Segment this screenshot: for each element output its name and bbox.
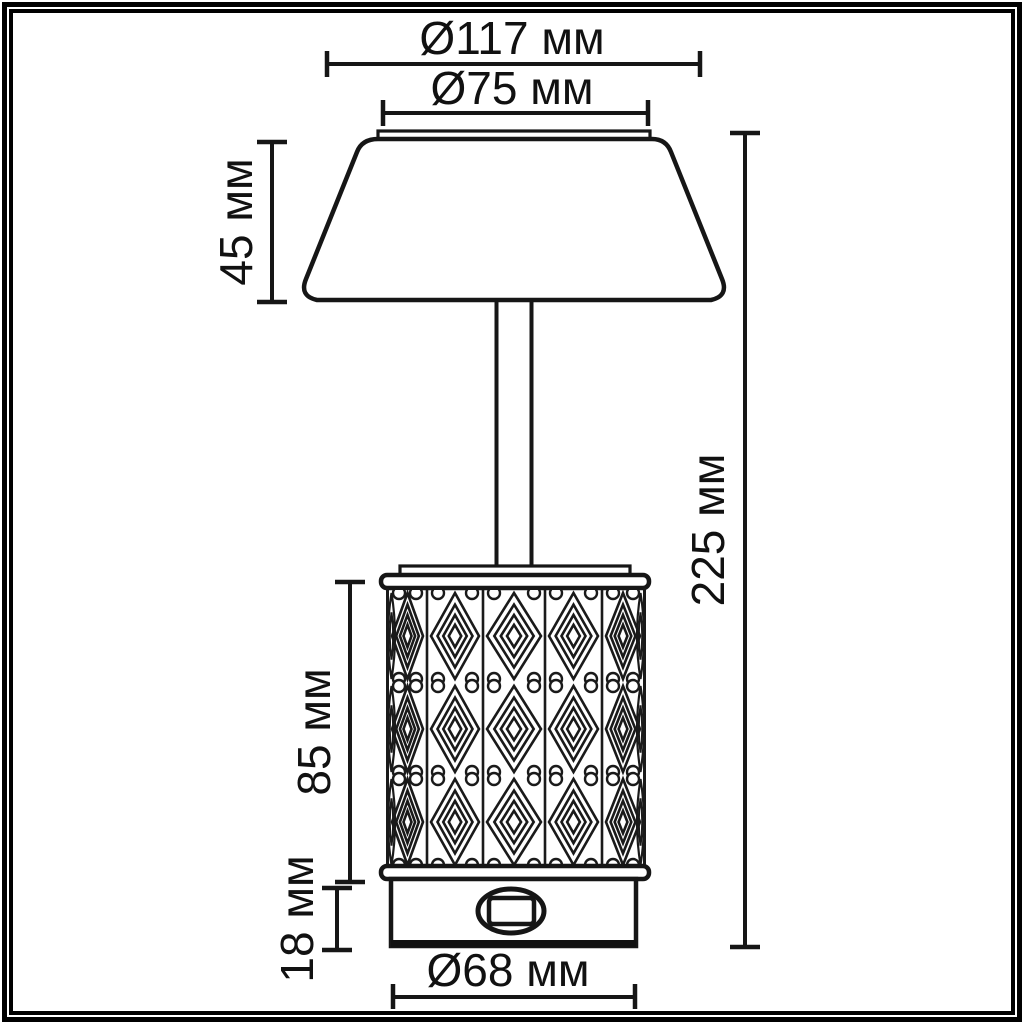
bead-circle — [410, 680, 422, 692]
diamond — [567, 811, 580, 833]
body-top-rim — [381, 575, 649, 588]
bead-circle — [393, 680, 405, 692]
diamond — [567, 625, 580, 647]
bead-circle — [550, 680, 562, 692]
bead-circle — [607, 773, 619, 785]
diamond — [403, 718, 411, 740]
diamond — [567, 718, 580, 740]
bead-circle — [585, 773, 597, 785]
technical-drawing-page: Ø117 мм Ø75 мм 45 мм 225 мм — [0, 0, 1024, 1024]
bead-circle — [466, 773, 478, 785]
body-pattern — [388, 587, 644, 871]
diamond — [403, 625, 411, 647]
bead-circle — [410, 773, 422, 785]
bead-circle — [550, 773, 562, 785]
bead-circle — [488, 773, 500, 785]
dim-label-shade-outer-diameter: Ø117 мм — [419, 12, 604, 64]
diamond — [449, 811, 461, 833]
diamond — [403, 811, 411, 833]
diamond — [619, 718, 628, 740]
bead-circle — [466, 680, 478, 692]
diamond — [619, 625, 628, 647]
dim-body-height: 85 мм — [288, 582, 365, 882]
bead-circle — [585, 680, 597, 692]
dim-label-shade-height: 45 мм — [210, 158, 262, 285]
bead-circle — [393, 773, 405, 785]
power-button[interactable] — [478, 889, 544, 933]
bead-circle — [488, 680, 500, 692]
bead-circle — [627, 680, 639, 692]
dim-label-body-height: 85 мм — [288, 668, 340, 795]
dim-label-shade-inner-diameter: Ø75 мм — [431, 62, 594, 114]
diamond — [449, 625, 461, 647]
diamond — [449, 718, 461, 740]
dim-label-base-diameter: Ø68 мм — [427, 944, 590, 996]
lamp-dimension-drawing: Ø117 мм Ø75 мм 45 мм 225 мм — [0, 0, 1024, 1024]
bead-circle — [432, 773, 444, 785]
bead-circle — [627, 773, 639, 785]
diamond — [507, 811, 521, 833]
lamp-stem — [497, 300, 532, 572]
lamp-shade — [304, 139, 724, 300]
diamond — [619, 811, 628, 833]
bead-circle — [528, 680, 540, 692]
dim-shade-inner-diameter: Ø75 мм — [383, 62, 648, 126]
dim-base-height: 18 мм — [271, 855, 352, 982]
diamond — [507, 718, 521, 740]
dim-base-diameter: Ø68 мм — [393, 944, 635, 1009]
dim-label-total-height: 225 мм — [682, 454, 734, 607]
bead-circle — [607, 680, 619, 692]
bead-circle — [528, 773, 540, 785]
dim-label-base-height: 18 мм — [271, 855, 323, 982]
diamond — [507, 625, 521, 647]
bead-circle — [432, 680, 444, 692]
dim-shade-height: 45 мм — [210, 142, 287, 302]
